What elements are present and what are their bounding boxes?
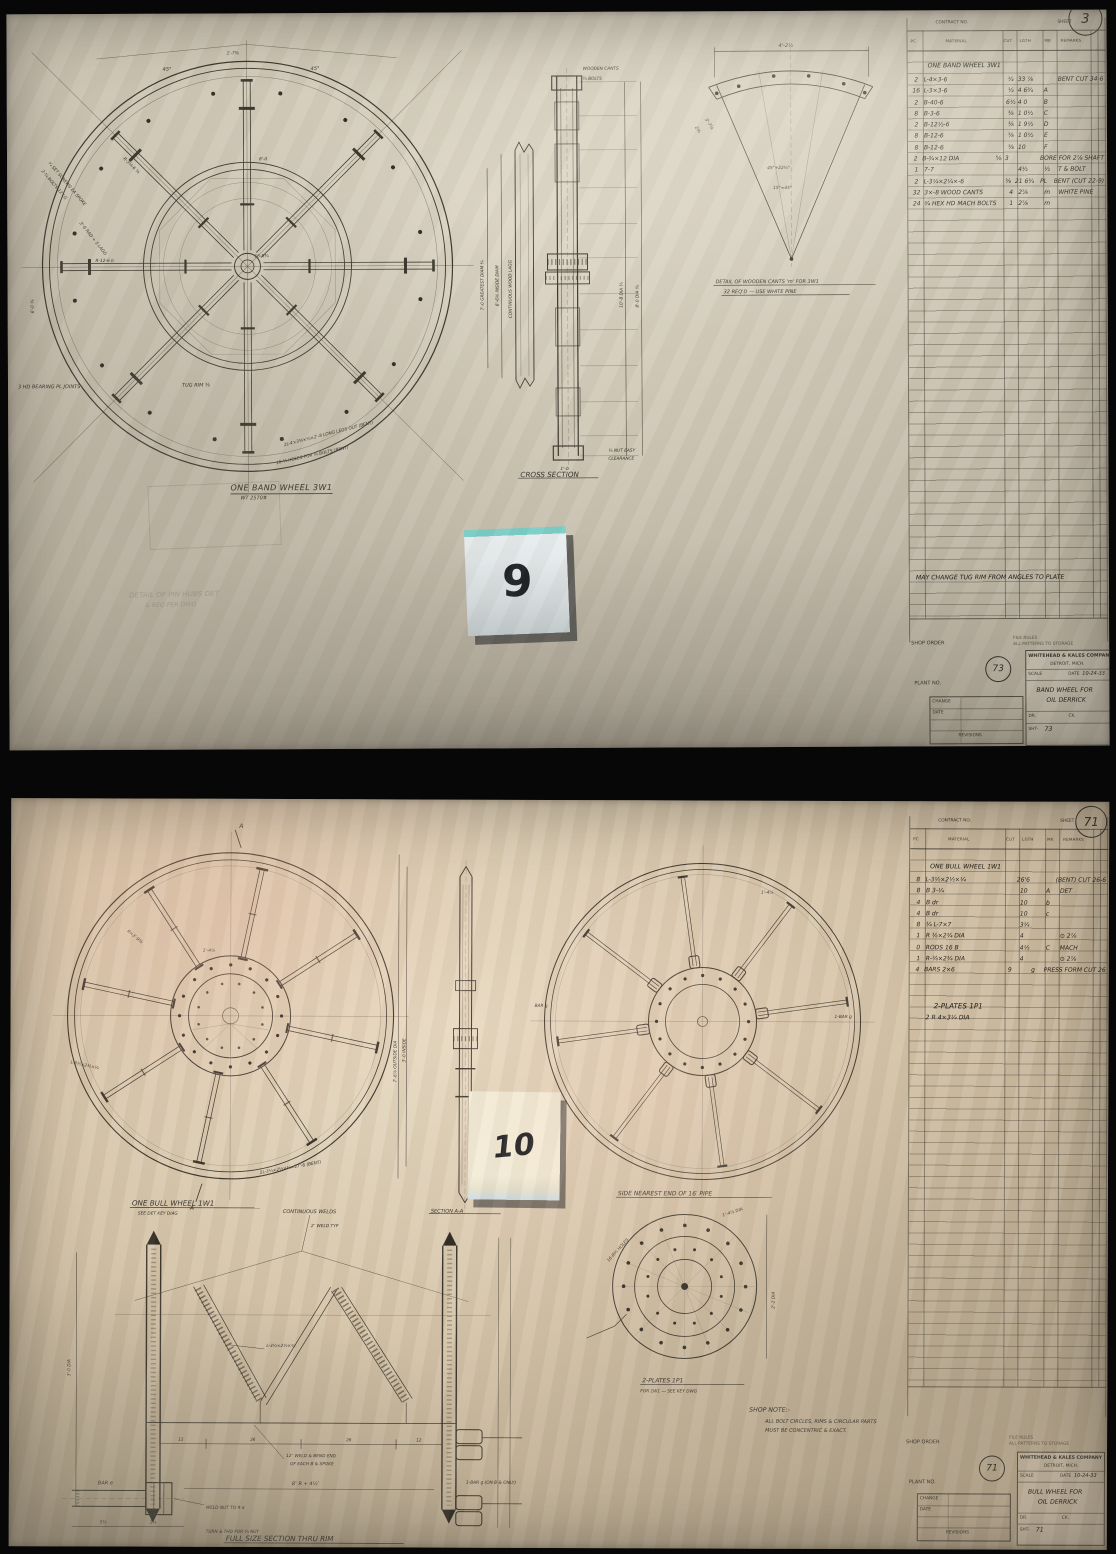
dim-label: 1'-4⅞ DIA xyxy=(722,1206,744,1218)
dim-label: 45°+22½° xyxy=(767,164,790,171)
dim-label: 1⅝ xyxy=(150,1520,158,1526)
revisions-label: REVISIONS xyxy=(959,733,982,738)
date-label: DATE xyxy=(920,1507,931,1512)
table-row: 8L-3½×2½×¼ 26'6 (BENT) CUT 26-6 xyxy=(911,874,1106,886)
revision-box: CHANGE DATE REVISIONS xyxy=(917,1493,1011,1541)
dim-label: R=3'-9⅜ xyxy=(126,928,145,945)
table-row: 4BARS 2×6 9 gPRESS FORM CUT 26 xyxy=(911,965,1106,977)
shop-order-label: SHOP ORDER xyxy=(906,1439,939,1445)
revisions-label: REVISIONS xyxy=(946,1530,969,1535)
shop-order-label: SHOP ORDER xyxy=(911,640,944,646)
dim-label: 2'-2 DIA xyxy=(771,1292,777,1309)
blueprint-sheet-10: A A R=3'-9⅜ 1'-4⅞ 2L-3½×2½×¼×27'-6 (BENT… xyxy=(9,798,1110,1550)
shop-note-line: ALL BOLT CIRCLES, RIMS & CIRCULAR PARTS xyxy=(765,1419,877,1425)
sticky-note-9[interactable]: 9 xyxy=(464,526,570,636)
dim-label: L-3½×2½×¼ xyxy=(266,1342,296,1349)
note-label: 1-BAR g xyxy=(835,1014,853,1020)
dim-label: 3'-0 INSIDE xyxy=(401,1038,407,1062)
table-row: 2L-3¼×2¼×-6 ⅜21 6¾ PLBENT (CUT 22-9) xyxy=(909,175,1104,187)
note-label: 16-¾ HOLES FOR ¾ BOLTS (BENT) xyxy=(276,445,350,467)
note-label: CONTINUOUS WOOD LAGG xyxy=(507,259,513,318)
drawing-number: 73 xyxy=(993,664,1004,674)
dim-label: R-12-6 b xyxy=(95,258,114,264)
sheet-number-circle: 71 xyxy=(1075,806,1107,838)
table-row: 1R ⅜×2¾ DIA 4 ⊙ 2⅞ xyxy=(911,931,1106,943)
note-label: ⅛ NUT EASY xyxy=(608,448,635,454)
bull-wheel-front-view: A A R=3'-9⅜ 1'-4⅞ 2L-3½×2½×¼×27'-6 (BENT… xyxy=(50,843,411,1216)
section-mark: A xyxy=(238,823,243,830)
pencil-note: DETAIL OF PIN HUBS DET xyxy=(129,589,219,600)
dim-label: 12 xyxy=(178,1437,184,1443)
dim-label: 7'-6⅞ OUTSIDE DIA xyxy=(392,1041,398,1083)
drawing-title-line2: OIL DERRICK xyxy=(1046,697,1086,704)
material-table: CONTRACT NO. SHEET PC MATERIAL CUT LGTH … xyxy=(906,18,1108,643)
dim-label: 8″ R + 4½″ xyxy=(292,1480,320,1487)
table-row: 8B-12-6 ⅜10 F xyxy=(909,141,1104,153)
photo-of-blueprints: 45° 45° 1'-7⅜ 16-R¾ TUG RIM ⅜ R-3¼-6 ⅜ R… xyxy=(0,0,1116,1554)
plates-note: 2-PLATES 1P1 xyxy=(934,1001,983,1010)
date-value: 10-24-33 xyxy=(1074,1473,1097,1479)
note-label: BAR g xyxy=(535,1003,548,1009)
material-rows: 2L-4×3-6 ¼33 ⅞ BENT CUT 34-6 16L-3×3-6 ¼… xyxy=(909,74,1105,210)
col-header: REMARKS xyxy=(1063,837,1084,842)
view-caption: SIDE NEAREST END OF 16′ PIPE xyxy=(618,1190,712,1197)
view-caption: 2-PLATES 1P1 xyxy=(642,1377,683,1384)
view-subcaption: FOR 1W1 — SEE KEY DWG xyxy=(640,1388,698,1394)
table-row: 2B-12½-6 ⅜1 9½ D xyxy=(909,119,1104,131)
table-row: 24¾ HEX HD MACH BOLTS 12⅞ m xyxy=(909,198,1104,210)
dim-label: 2⅛ xyxy=(693,125,702,135)
table-row: 16L-3×3-6 ¼4 6¾ A xyxy=(909,85,1104,97)
hub-plate-detail: 2'-2 DIA 1'-4⅞ DIA 16-R¾ HOLES 2-PLATES … xyxy=(584,1198,800,1399)
table-row: 323×-8 WOOD CANTS 42⅞ mWHITE PINE xyxy=(909,187,1104,199)
dim-label: 3'-6 RAD + 5 LAGG xyxy=(78,221,109,258)
table-row: 4B dr 10 b xyxy=(911,897,1106,909)
company-name: WHITEHEAD & KALES COMPANY xyxy=(1028,654,1109,659)
dim-label: 8'-0 DIA ¾ xyxy=(635,284,641,307)
table-row: 8B 3-¼ 10 ADET xyxy=(911,886,1106,898)
sheet-no-label: SHT- xyxy=(1020,1528,1030,1533)
note-label: CLEARANCE xyxy=(608,456,634,462)
col-header: MK xyxy=(1047,837,1054,842)
drawing-number-circle: 73 xyxy=(985,656,1011,682)
dim-label: 26 xyxy=(250,1437,256,1443)
part-label: BAR e xyxy=(98,1480,113,1486)
band-wheel-front-view: 45° 45° 1'-7⅜ 16-R¾ TUG RIM ⅜ R-3¼-6 ⅜ R… xyxy=(25,38,472,485)
company-city: DETROIT, MICH. xyxy=(1050,662,1084,667)
dim-label: 45° xyxy=(311,66,320,72)
note-label: WELD NUT TO R a xyxy=(206,1505,245,1511)
shop-note-title: SHOP NOTE:- xyxy=(749,1407,790,1414)
dim-label: 16-R¾ xyxy=(254,253,269,259)
sheet-no-value: 73 xyxy=(1045,726,1053,733)
fine-print: ALL PATTERNS TO STORAGE xyxy=(1013,642,1073,647)
sheet-no-label: SHT- xyxy=(1029,727,1039,732)
col-header: LGTH xyxy=(1020,38,1031,43)
cross-section-view: 7'-0 GREATEST DIAM ¾ 6'-6⅝ INSIDE DIAM 1… xyxy=(457,57,689,478)
dim-label: 1'-7⅜ xyxy=(227,50,240,56)
note-label: CONTINUOUS WELDS xyxy=(283,1209,337,1215)
table-title: ONE BULL WHEEL 1W1 xyxy=(930,863,1001,870)
drawn-label: DR. xyxy=(1028,714,1036,719)
sheet-number: 71 xyxy=(1084,815,1099,829)
sticky-note-10[interactable]: 10 xyxy=(467,1091,560,1200)
dim-label: 26 xyxy=(346,1437,352,1443)
contract-label: CONTRACT NO. xyxy=(935,20,968,25)
table-row: 0RODS 16 B 4½ CMACH xyxy=(911,942,1106,954)
col-header: CUT xyxy=(1006,837,1015,842)
dim-label: L-3½×2½×¼ xyxy=(70,1058,100,1071)
sticky-note-label: 10 xyxy=(492,1126,537,1165)
table-row: 4B dr 10 c xyxy=(911,908,1106,920)
date-label: DATE xyxy=(1068,672,1079,677)
dim-label: 12 xyxy=(416,1438,422,1444)
material-table: CONTRACT NO. SHEET PC MATERIAL CUT LGTH … xyxy=(907,816,1108,1417)
dim-label: 3'-7⅛ xyxy=(703,117,715,131)
table-row: 2L-4×3-6 ¼33 ⅞ BENT CUT 34-6 xyxy=(909,74,1104,86)
plates-note: 2 R 4×3¼ DIA xyxy=(926,1014,970,1021)
drawing-number-circle: 71 xyxy=(979,1455,1005,1481)
col-header: PC xyxy=(913,836,919,841)
fine-print: FILE RULES xyxy=(1013,636,1037,641)
table-title: ONE BAND WHEEL 3W1 xyxy=(928,62,1001,69)
bull-wheel-side-view: 1-BAR g BAR g 1'-4⅞ SIDE NEAREST END OF … xyxy=(530,855,876,1201)
date-value: 10-24-33 xyxy=(1082,671,1105,677)
shop-note-line: MUST BE CONCENTRIC & EXACT. xyxy=(765,1428,847,1434)
note-label: 2″ WELD TYP xyxy=(311,1223,339,1229)
dim-label: 7'-0 GREATEST DIAM ¾ xyxy=(479,259,485,310)
checked-label: CK. xyxy=(1068,714,1075,719)
date-label: DATE xyxy=(1060,1474,1071,1479)
drawing-title-line1: BULL WHEEL FOR xyxy=(1028,1489,1082,1496)
dim-label: 10'-8 DIA ¾ xyxy=(619,282,625,308)
material-rows: 8L-3½×2½×¼ 26'6 (BENT) CUT 26-6 8B 3-¼ 1… xyxy=(911,874,1106,976)
table-row: 8B-3-6 ⅜1 0½ C xyxy=(909,108,1104,120)
dim-label: 3'-0 DIA xyxy=(66,1359,72,1376)
checked-label: CK. xyxy=(1062,1516,1069,1521)
note-label: 2L-4×3⅜×¼×2'-8 LONG LEGS OUT (BENT) xyxy=(283,420,374,449)
drawn-label: DR. xyxy=(1020,1516,1028,1521)
dim-label: 1'-4⅞ xyxy=(761,890,774,896)
dim-label: 5½ xyxy=(100,1518,108,1525)
sheet-no-value: 71 xyxy=(1036,1527,1044,1534)
dim-label: 45° xyxy=(163,67,172,73)
full-size-rim-section: CONTINUOUS WELDS 2″ WELD TYP L-3½×2½×¼ 1… xyxy=(54,1196,555,1545)
fine-print: FILE RULES xyxy=(1009,1436,1033,1441)
note-label: ¾ BOLTS xyxy=(583,76,603,82)
note-label: WOODEN CANTS xyxy=(583,66,619,72)
contract-label: CONTRACT NO. xyxy=(938,818,971,823)
drawing-title-line1: BAND WHEEL FOR xyxy=(1036,687,1093,694)
note-label: 1-BAR g (ON B & ONLY) xyxy=(466,1480,517,1486)
fine-print: ALL PATTERNS TO STORAGE xyxy=(1009,1442,1069,1447)
sheet-number: 3 xyxy=(1081,11,1089,26)
dim-label: 1'-4⅞ xyxy=(203,948,216,954)
note-label: OF EACH B & SPOKE xyxy=(290,1461,334,1467)
scale-label: SCALE xyxy=(1020,1474,1034,1479)
title-block: WHITEHEAD & KALES COMPANY DETROIT, MICH.… xyxy=(1025,650,1109,746)
drawing-number: 71 xyxy=(986,1463,997,1473)
blueprint-sheet-9: 45° 45° 1'-7⅜ 16-R¾ TUG RIM ⅜ R-3¼-6 ⅜ R… xyxy=(6,10,1109,751)
col-header: PC xyxy=(911,38,917,43)
col-header: CUT xyxy=(1004,38,1013,43)
col-header: MK xyxy=(1045,38,1052,43)
bearing-note: 3 HD BEARING PL JOINTS xyxy=(18,384,80,390)
table-row: 1R-⅜×2¾ DIA 4 ⊙ 2⅞ xyxy=(911,953,1106,965)
company-city: DETROIT, MICH. xyxy=(1044,1464,1078,1469)
plant-no-label: PLANT NO. xyxy=(909,1479,936,1485)
company-name: WHITEHEAD & KALES COMPANY xyxy=(1020,1456,1102,1461)
sheet-label: SHEET xyxy=(1060,819,1074,824)
table-row: 2B-¾×12 DIA ⅝3 BORE FOR 2⅞ SHAFT xyxy=(909,153,1104,165)
dim-label: TUG RIM ⅜ xyxy=(182,383,210,389)
table-row: 17-7 4½ ½T & BOLT xyxy=(909,164,1104,176)
change-label: CHANGE xyxy=(920,1496,938,1501)
dim-label: 6'-0 ⅜ xyxy=(30,299,36,314)
revision-box: CHANGE DATE REVISIONS xyxy=(929,696,1023,744)
col-header: MATERIAL xyxy=(948,836,969,841)
dim-label: 8'-0 xyxy=(259,156,267,162)
sticky-note-label: 9 xyxy=(501,555,532,606)
date-label: DATE xyxy=(932,710,943,715)
dim-label: 15°=45° xyxy=(773,185,792,191)
dim-label: 6'-6⅝ INSIDE DIAM xyxy=(494,265,500,306)
note-label: 12″ WELD & BEND END xyxy=(286,1453,337,1459)
col-header: REMARKS xyxy=(1061,38,1082,43)
table-row: 8B-12-6 ⅜1 0½ E xyxy=(909,130,1104,142)
drawing-title-line2: OIL DERRICK xyxy=(1038,1499,1078,1506)
change-label: CHANGE xyxy=(932,699,950,704)
scale-label: SCALE xyxy=(1028,672,1042,677)
dim-label: 4'-2½ xyxy=(779,42,794,49)
title-block: WHITEHEAD & KALES COMPANY DETROIT, MICH.… xyxy=(1017,1452,1105,1546)
change-note: MAY CHANGE TUG RIM FROM ANGLES TO PLATE xyxy=(916,574,1065,582)
plant-no-label: PLANT NO. xyxy=(914,680,941,686)
pencil-note: & REQ PER DWG xyxy=(145,601,197,609)
view-subcaption: 32 REQ'D — USE WHITE PINE xyxy=(724,289,798,295)
pencil-sketch xyxy=(147,481,281,550)
table-row: 8¾ L-7×7 3¼ xyxy=(911,919,1106,931)
wooden-cant-detail: 4'-2½ 2⅛ 3'-7⅛ 45°+22½° 15°=45° DETAIL O… xyxy=(678,26,904,307)
col-header: MATERIAL xyxy=(946,38,967,43)
view-caption: FULL SIZE SECTION THRU RIM xyxy=(226,1534,335,1543)
col-header: LGTH xyxy=(1022,837,1033,842)
view-caption: DETAIL OF WOODEN CANTS 'm' FOR 3W1 xyxy=(716,279,819,285)
table-row: 2B-40-6 6½4 0 B xyxy=(909,96,1104,108)
